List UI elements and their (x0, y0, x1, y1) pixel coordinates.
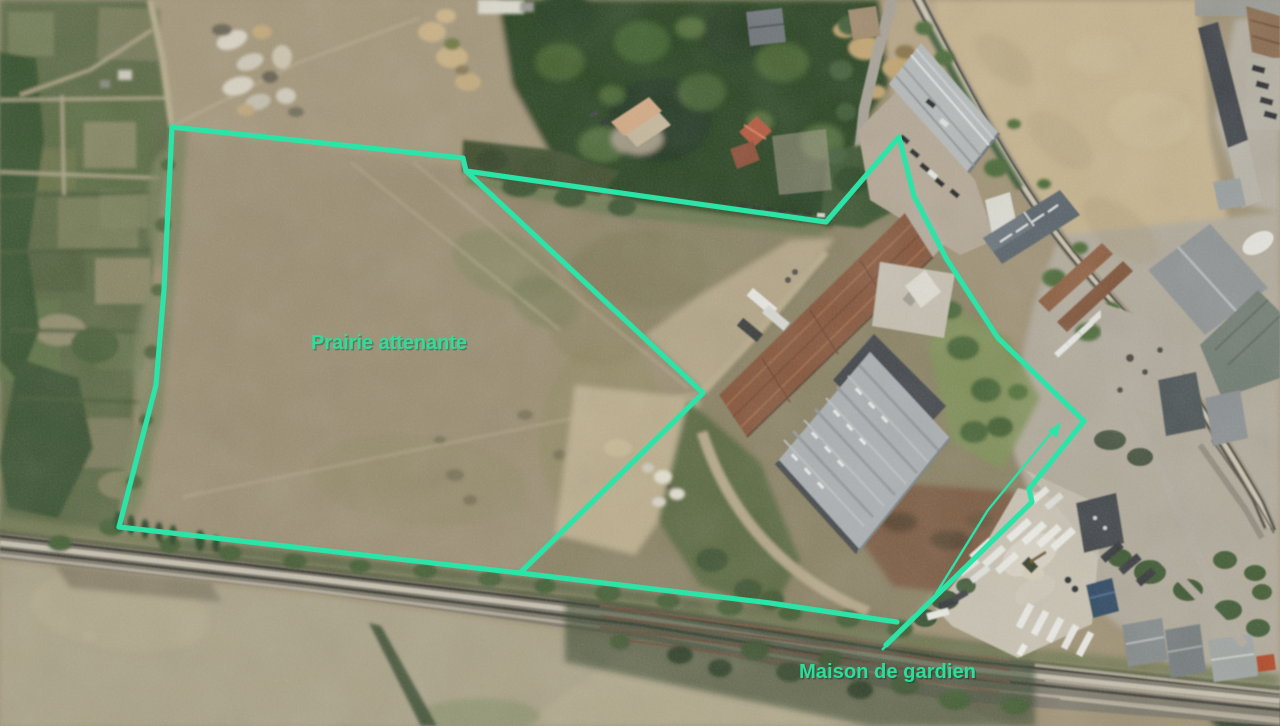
svg-text:Maison de gardien: Maison de gardien (799, 660, 976, 683)
svg-text:Prairie attenante: Prairie attenante (311, 331, 467, 354)
